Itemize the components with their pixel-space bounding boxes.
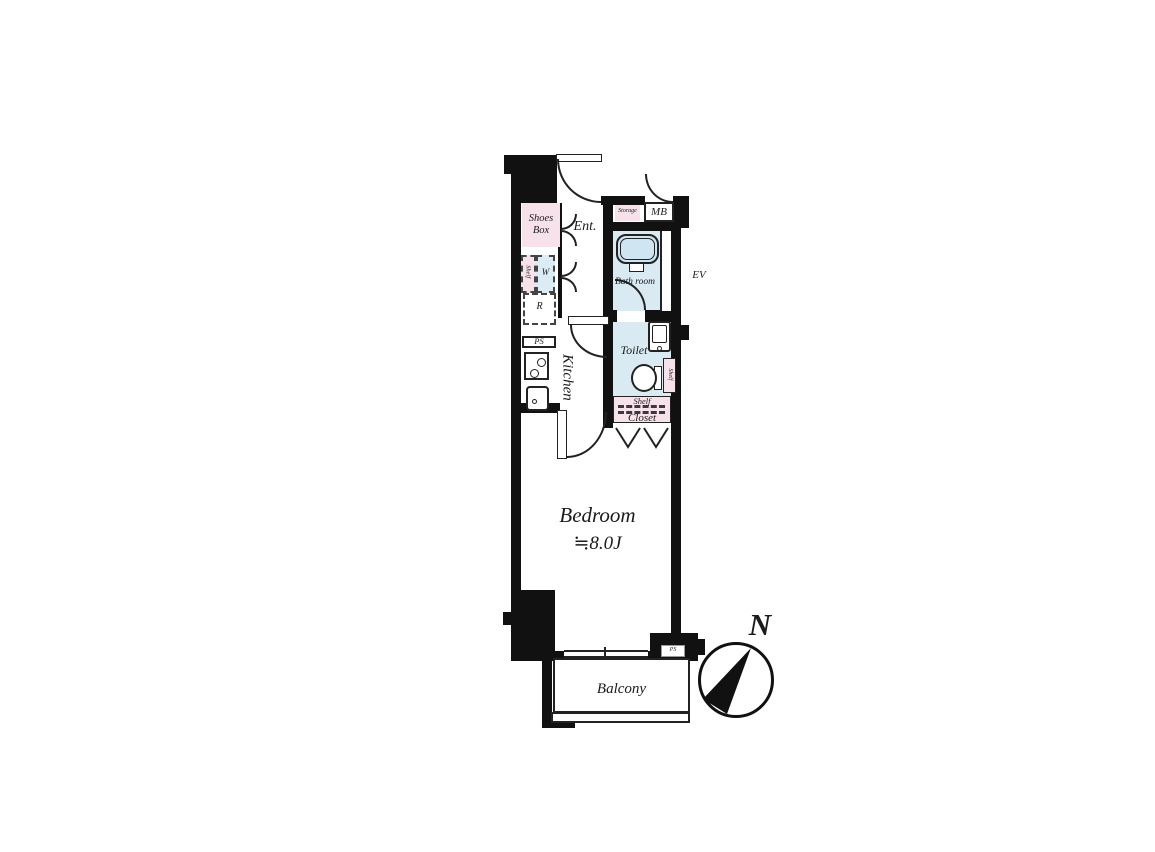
meter-box-label: MB	[644, 206, 674, 218]
north-label: N	[743, 608, 777, 643]
elevator-label: EV	[688, 269, 710, 281]
cabinet-door-arc	[561, 262, 577, 277]
compass-needle	[698, 642, 774, 718]
toilet-bowl	[631, 364, 657, 392]
cabinet-door-arc	[561, 277, 577, 292]
closet-shelf-label: Shelf	[613, 397, 671, 407]
bedroom-door-leaf	[557, 410, 567, 459]
shoes-box-label: Shoes Box	[520, 213, 562, 237]
entrance-door-arc	[557, 159, 601, 203]
wall	[511, 155, 557, 203]
sink-drain	[532, 399, 537, 404]
stove	[524, 352, 549, 380]
entrance-label: Ent.	[565, 219, 605, 235]
wall	[681, 210, 689, 228]
toilet-label: Toilet	[612, 344, 656, 357]
wall	[511, 203, 521, 653]
shelf-label: Shelf	[524, 250, 531, 294]
bath-faucet	[629, 263, 644, 272]
meter-box-door-arc	[645, 174, 673, 203]
closet-folding-doors	[614, 426, 670, 449]
toilet-shelf-label: Shelf	[666, 357, 673, 392]
bathtub	[616, 234, 659, 264]
bedroom-door-arc	[567, 412, 607, 458]
vanity-basin	[652, 325, 667, 343]
balcony-label: Balcony	[553, 681, 690, 698]
refrigerator-label: R	[523, 301, 556, 312]
hall-door-leaf	[568, 316, 609, 325]
bedroom-label: Bedroom	[535, 504, 660, 528]
bath-surround	[660, 231, 671, 311]
washer-label: W	[536, 267, 555, 277]
vanity-drain	[657, 346, 662, 351]
stove-burner	[537, 358, 546, 367]
wall	[681, 325, 689, 340]
wall	[603, 196, 613, 322]
wall	[671, 205, 681, 661]
bedroom-size-label: ≒8.0J	[535, 533, 660, 554]
bathroom-label: Bath room	[612, 277, 658, 288]
pipe-space-small-label: PS	[661, 647, 685, 654]
stove-burner	[530, 369, 539, 378]
wall	[613, 222, 681, 231]
pipe-space-label: PS	[522, 337, 556, 347]
closet-label: Closet	[613, 412, 671, 424]
storage-label: Storage	[615, 208, 640, 215]
floor-plan: Shoes Box Ent. Storage MB Bath room EV S…	[0, 0, 1155, 852]
kitchen-label: Kitchen	[559, 347, 576, 407]
hall-door-arc	[570, 325, 607, 358]
bathtub-inner	[620, 238, 655, 260]
compass	[698, 642, 774, 718]
balcony-ledge	[551, 712, 690, 723]
kitchen-sink	[526, 386, 549, 411]
